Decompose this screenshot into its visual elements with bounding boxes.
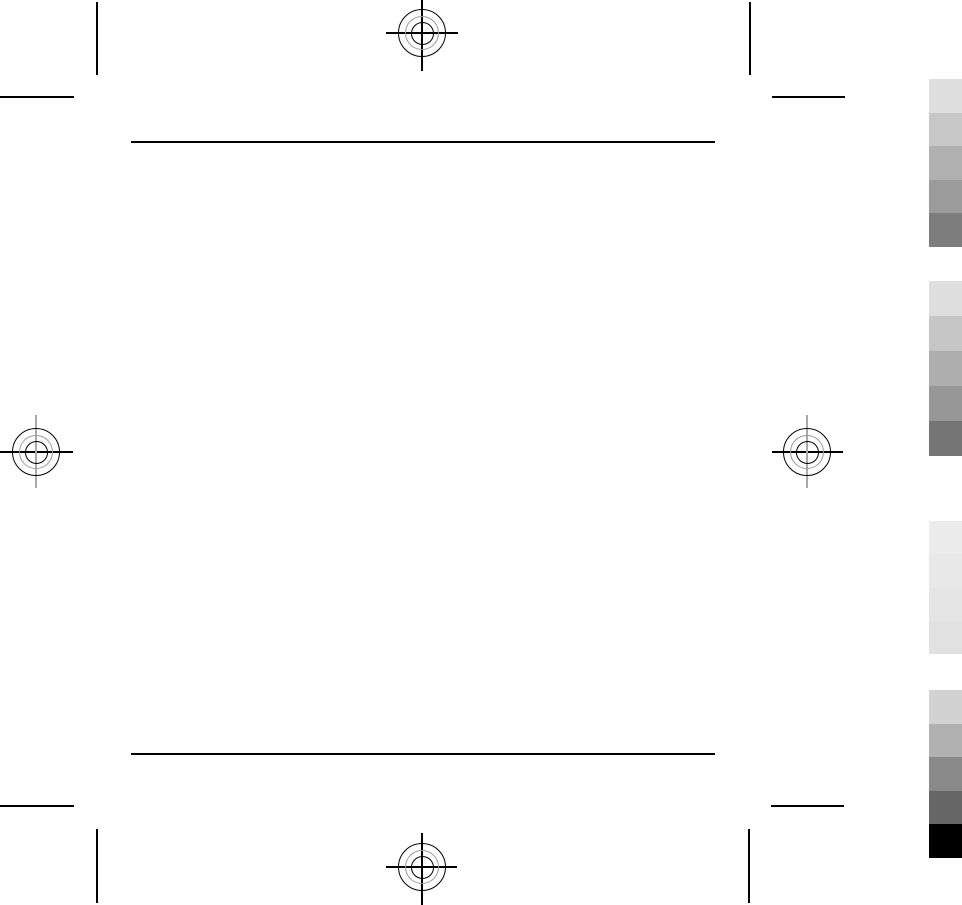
registration-ring-inner xyxy=(411,22,434,45)
crop-mark-bottom-left-horizontal xyxy=(0,805,74,807)
print-proof-page xyxy=(0,0,962,905)
calibration-swatch xyxy=(929,554,962,587)
bottom-rule xyxy=(131,753,715,755)
calibration-swatch xyxy=(929,316,962,351)
calibration-bar-group-3 xyxy=(929,521,962,654)
crop-mark-bottom-right-horizontal xyxy=(771,805,844,807)
registration-ring-inner xyxy=(411,856,434,879)
calibration-swatch xyxy=(929,281,962,316)
calibration-swatch xyxy=(929,724,962,758)
registration-mark-left-icon xyxy=(12,428,60,476)
calibration-swatch xyxy=(929,146,962,180)
calibration-swatch xyxy=(929,791,962,825)
calibration-strip xyxy=(929,0,962,905)
calibration-swatch xyxy=(929,386,962,421)
calibration-bar-group-4 xyxy=(929,690,962,858)
calibration-swatch xyxy=(929,421,962,456)
registration-mark-right-icon xyxy=(783,428,831,476)
crop-mark-bottom-right-vertical xyxy=(748,829,750,903)
registration-ring-inner xyxy=(796,441,819,464)
top-rule xyxy=(131,141,715,143)
crop-mark-top-right-horizontal xyxy=(772,96,845,98)
calibration-swatch xyxy=(929,690,962,724)
calibration-swatch xyxy=(929,351,962,386)
crop-mark-top-right-vertical xyxy=(749,2,751,75)
calibration-swatch xyxy=(929,824,962,858)
calibration-swatch xyxy=(929,180,962,214)
crop-mark-top-left-horizontal xyxy=(0,96,74,98)
calibration-swatch xyxy=(929,79,962,113)
crop-mark-bottom-left-vertical xyxy=(96,829,98,903)
calibration-bar-group-2 xyxy=(929,281,962,456)
registration-mark-bottom-icon xyxy=(398,843,446,891)
calibration-bar-group-1 xyxy=(929,79,962,247)
crop-mark-top-left-vertical xyxy=(96,2,98,75)
calibration-swatch xyxy=(929,757,962,791)
calibration-swatch xyxy=(929,213,962,247)
calibration-swatch xyxy=(929,521,962,554)
calibration-swatch xyxy=(929,113,962,147)
calibration-swatch xyxy=(929,621,962,654)
registration-mark-top-icon xyxy=(398,9,446,57)
calibration-swatch xyxy=(929,588,962,621)
registration-ring-inner xyxy=(25,441,48,464)
